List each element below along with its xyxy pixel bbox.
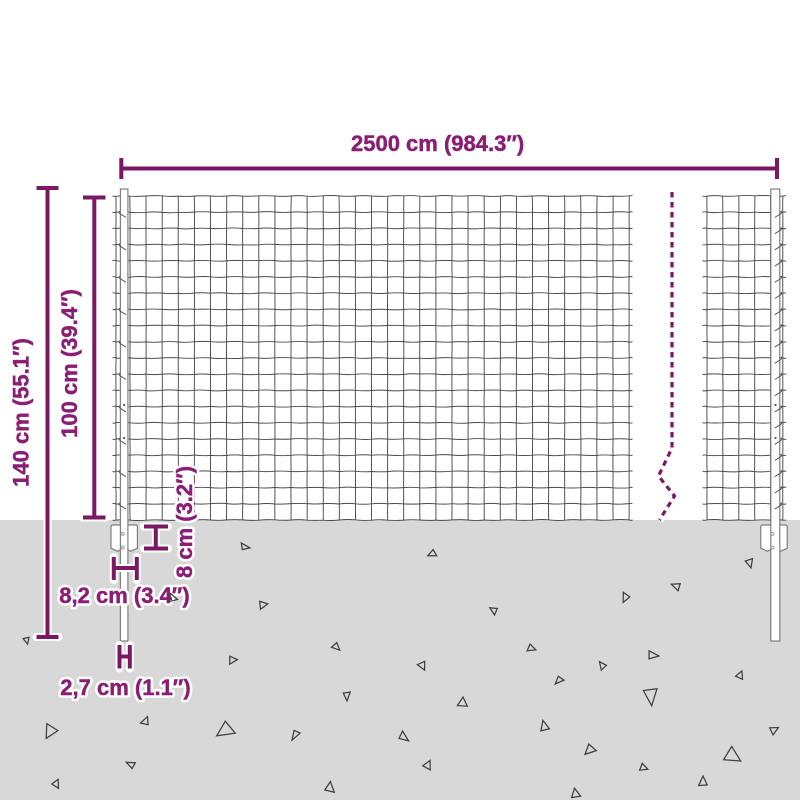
svg-text:2,7 cm (1.1″): 2,7 cm (1.1″)	[60, 675, 190, 700]
svg-text:8 cm (3.2″): 8 cm (3.2″)	[172, 466, 197, 578]
svg-text:2500 cm (984.3″): 2500 cm (984.3″)	[351, 131, 524, 156]
svg-text:140 cm (55.1″): 140 cm (55.1″)	[8, 338, 33, 487]
svg-text:100 cm (39.4″): 100 cm (39.4″)	[57, 289, 82, 438]
